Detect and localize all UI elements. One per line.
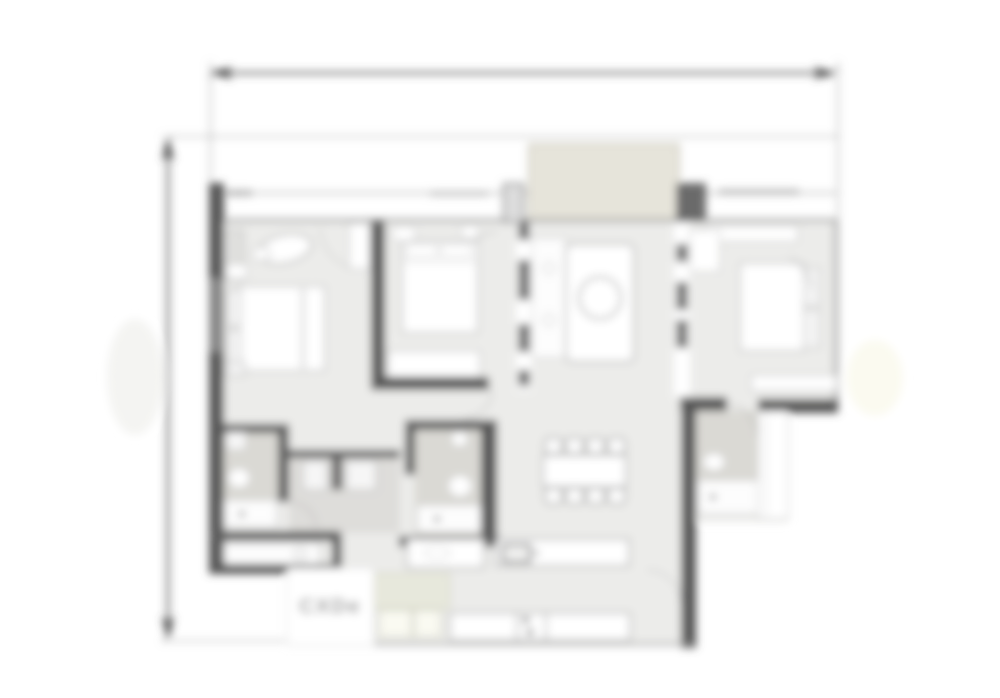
svg-text:CXDe: CXDe — [299, 595, 361, 618]
